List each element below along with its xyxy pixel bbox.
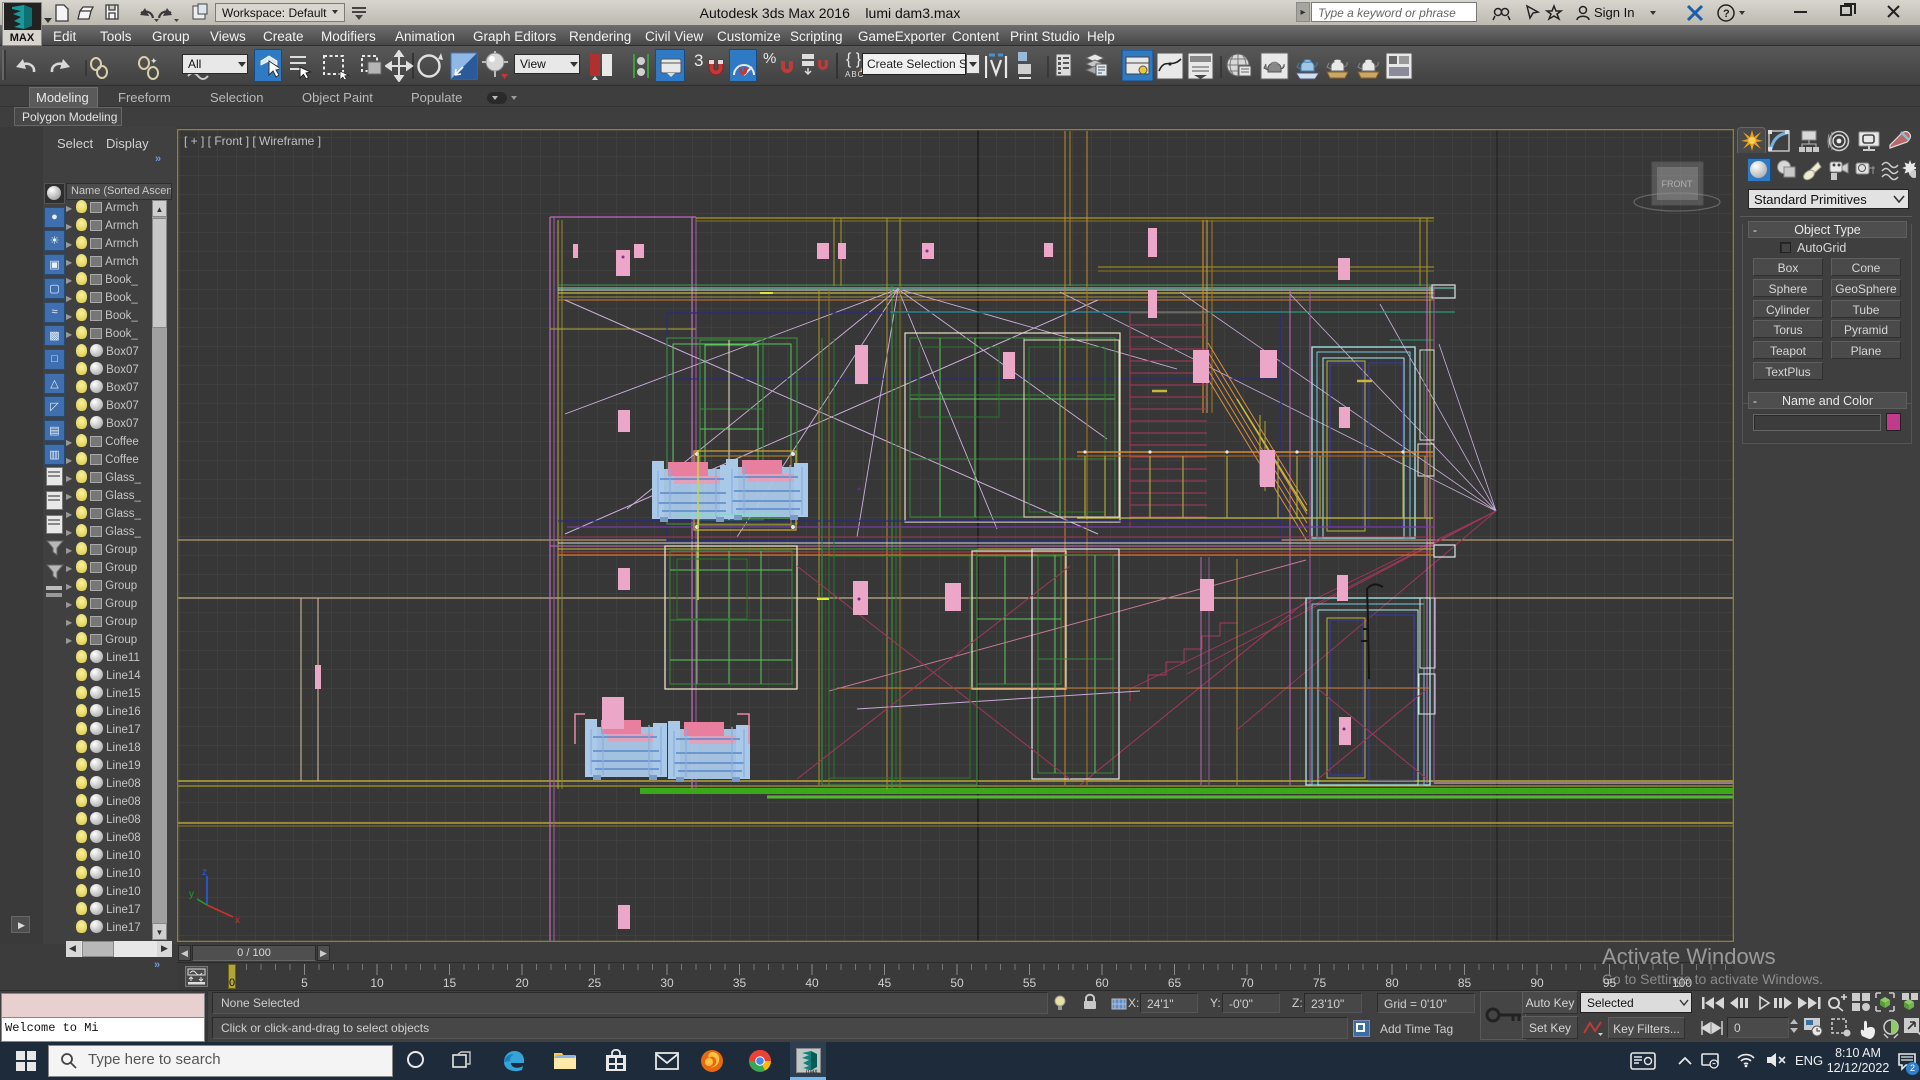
svg-text:20: 20 [515, 976, 529, 990]
svg-text:x: x [235, 915, 240, 926]
svg-text:FRONT: FRONT [1662, 179, 1693, 189]
svg-text:[ + ] [ Front ] [ Wireframe ]: [ + ] [ Front ] [ Wireframe ] [184, 134, 321, 148]
svg-text:30: 30 [660, 976, 674, 990]
svg-text:75: 75 [1313, 976, 1327, 990]
svg-text:y: y [189, 889, 194, 900]
svg-text:45: 45 [878, 976, 892, 990]
svg-text:5: 5 [301, 976, 308, 990]
svg-text:55: 55 [1023, 976, 1037, 990]
svg-text:z: z [202, 867, 207, 878]
svg-text:90: 90 [1530, 976, 1544, 990]
svg-text:✦: ✦ [150, 56, 158, 66]
svg-text:80: 80 [1385, 976, 1399, 990]
svg-text:70: 70 [1240, 976, 1254, 990]
svg-text:Sign In: Sign In [1594, 5, 1634, 20]
svg-text:85: 85 [1458, 976, 1472, 990]
svg-text:?: ? [1723, 8, 1730, 20]
svg-text:35: 35 [733, 976, 747, 990]
svg-text:65: 65 [1168, 976, 1182, 990]
svg-text:15: 15 [443, 976, 457, 990]
svg-text:60: 60 [1095, 976, 1109, 990]
svg-text:10: 10 [370, 976, 384, 990]
svg-text:40: 40 [805, 976, 819, 990]
svg-text:25: 25 [588, 976, 602, 990]
svg-text:50: 50 [950, 976, 964, 990]
